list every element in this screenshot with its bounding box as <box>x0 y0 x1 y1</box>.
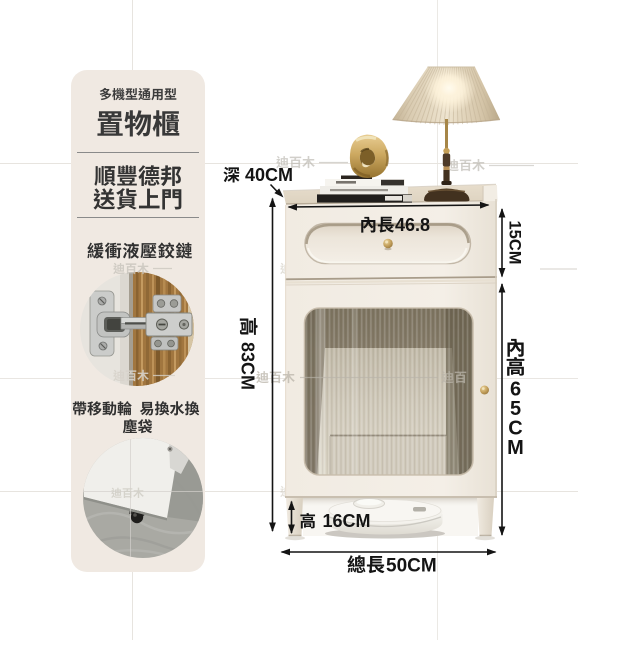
svg-text:40CM: 40CM <box>245 165 293 185</box>
svg-text:83CM: 83CM <box>238 342 258 390</box>
svg-text:46.8: 46.8 <box>395 215 430 235</box>
svg-text:16CM: 16CM <box>323 511 371 531</box>
svg-text:50CM: 50CM <box>386 556 437 577</box>
svg-text:M: M <box>507 437 524 459</box>
svg-text:15CM: 15CM <box>506 220 524 264</box>
